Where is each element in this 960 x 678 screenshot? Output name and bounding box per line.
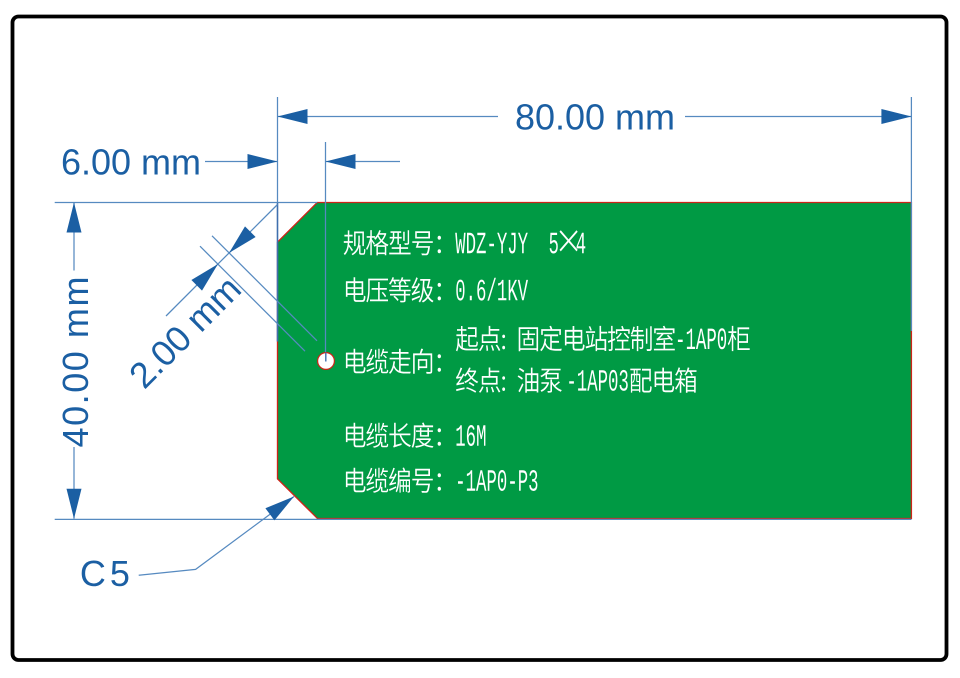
svg-text:2.00 mm: 2.00 mm	[121, 268, 249, 396]
svg-text:40.00 mm: 40.00 mm	[55, 277, 96, 448]
svg-text:6.00 mm: 6.00 mm	[61, 142, 201, 183]
svg-text:C5: C5	[80, 553, 134, 594]
svg-text:80.00 mm: 80.00 mm	[515, 97, 675, 138]
